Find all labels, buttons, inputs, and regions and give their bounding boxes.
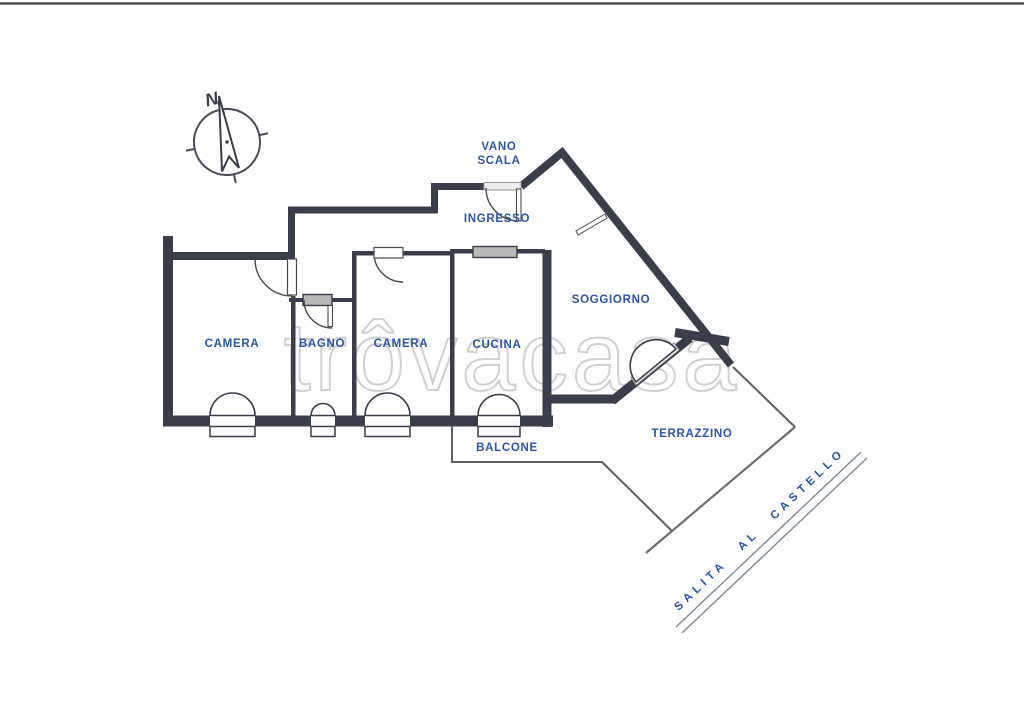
wall-segment <box>335 416 365 427</box>
door-leaf <box>328 306 333 327</box>
wall-segment <box>352 251 357 421</box>
door-swing-camera-left <box>255 259 292 296</box>
wall-segment <box>450 249 455 421</box>
compass-tick <box>186 149 195 151</box>
wall-segment <box>517 249 545 254</box>
wall-segment <box>543 395 615 404</box>
street-line <box>682 458 867 633</box>
floor-plan-page: trôvacasa <box>0 0 1024 724</box>
wall-segment <box>352 251 374 256</box>
floor-plan-svg: trôvacasa <box>0 0 1024 724</box>
window-sill <box>365 427 410 437</box>
door-leaf <box>288 259 297 295</box>
terrace-boundary <box>646 427 795 553</box>
room-label-bagno: BAGNO <box>299 338 345 350</box>
terrace-boundary <box>733 367 795 427</box>
room-label-cucina: CUCINA <box>473 339 522 351</box>
kitchen-window <box>473 247 517 258</box>
north-needle-icon <box>219 96 239 172</box>
wall-segment <box>403 251 454 256</box>
entrance-threshold <box>484 183 521 191</box>
street-label-salita-al-castello: SALITA AL CASTELLO <box>672 446 847 613</box>
wall-segment <box>289 298 303 302</box>
wall-segment <box>288 207 295 260</box>
wall-segment <box>288 207 438 214</box>
street-line <box>676 452 861 627</box>
wall-segment <box>431 183 484 190</box>
wall-opening-mark <box>576 214 607 235</box>
window-sill <box>478 427 520 437</box>
compass-center-dot <box>225 140 228 143</box>
compass-tick <box>234 174 236 183</box>
wall-segment <box>163 416 210 427</box>
room-label-camera-left: CAMERA <box>205 338 260 350</box>
wall-segment <box>255 416 311 427</box>
room-label-vano-scala-2: SCALA <box>477 155 520 167</box>
room-label-ingresso: INGRESSO <box>464 213 530 225</box>
wall-segment <box>450 249 473 254</box>
doorway <box>374 248 403 259</box>
wall-segment <box>291 296 296 421</box>
room-label-terrazzino: TERRAZZINO <box>651 428 732 440</box>
wall-segment <box>163 236 173 426</box>
room-label-balcone: BALCONE <box>476 442 538 454</box>
wall-segment <box>168 252 291 260</box>
window-sill <box>311 427 335 437</box>
compass-rose: N <box>177 88 277 192</box>
bathroom-door-lintel <box>303 295 332 306</box>
room-label-camera-mid: CAMERA <box>374 338 429 350</box>
room-label-soggiorno: SOGGIORNO <box>572 294 651 306</box>
room-label-vano-scala-1: VANO <box>481 141 516 153</box>
wall-segment <box>410 416 478 427</box>
compass-tick <box>259 133 268 135</box>
window-sill <box>210 427 255 437</box>
french-window <box>210 393 255 416</box>
